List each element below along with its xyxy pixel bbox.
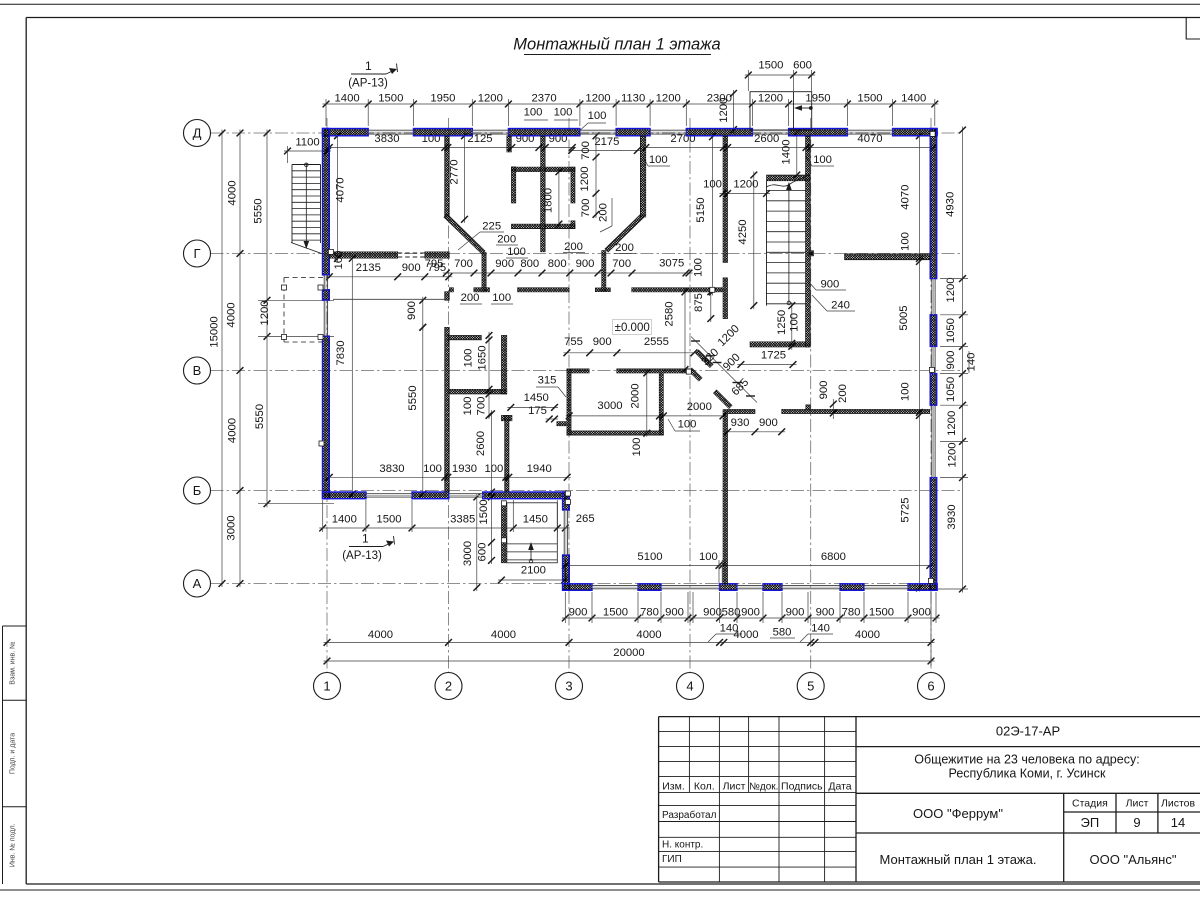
svg-text:900: 900: [665, 606, 684, 618]
svg-text:3830: 3830: [374, 133, 399, 145]
svg-text:Дата: Дата: [828, 780, 851, 792]
svg-text:1200: 1200: [259, 300, 271, 325]
svg-text:1200: 1200: [579, 166, 591, 191]
svg-text:3000: 3000: [597, 400, 622, 412]
svg-text:4070: 4070: [900, 185, 912, 210]
svg-text:4070: 4070: [857, 133, 882, 145]
svg-text:Лист: Лист: [1126, 798, 1149, 810]
svg-text:795: 795: [427, 262, 446, 274]
svg-text:1500: 1500: [857, 92, 882, 104]
svg-text:4000: 4000: [855, 629, 880, 641]
svg-text:900: 900: [816, 606, 835, 618]
svg-text:1950: 1950: [430, 92, 455, 104]
svg-text:1400: 1400: [335, 92, 360, 104]
svg-text:4000: 4000: [227, 418, 239, 443]
svg-text:1400: 1400: [901, 92, 926, 104]
svg-text:1200: 1200: [585, 92, 610, 104]
svg-text:Д: Д: [193, 126, 202, 141]
svg-text:100: 100: [649, 154, 668, 166]
svg-text:2370: 2370: [532, 92, 557, 104]
svg-text:1940: 1940: [527, 463, 552, 475]
svg-text:1200: 1200: [945, 277, 957, 302]
svg-text:2580: 2580: [664, 301, 676, 326]
svg-text:1450: 1450: [523, 514, 548, 526]
svg-text:±0.000: ±0.000: [615, 322, 650, 334]
svg-text:780: 780: [842, 606, 861, 618]
svg-text:755: 755: [564, 336, 583, 348]
svg-text:6: 6: [927, 679, 934, 694]
svg-text:1450: 1450: [524, 392, 549, 404]
svg-text:200: 200: [564, 241, 583, 253]
svg-text:6800: 6800: [821, 551, 846, 563]
svg-text:1200: 1200: [947, 442, 959, 467]
svg-text:ГИП: ГИП: [662, 854, 682, 865]
svg-text:800: 800: [548, 258, 567, 270]
svg-text:5150: 5150: [695, 197, 707, 222]
svg-text:900: 900: [569, 606, 588, 618]
svg-text:1500: 1500: [603, 606, 628, 618]
svg-text:№док.: №док.: [749, 781, 778, 792]
svg-text:1050: 1050: [945, 377, 957, 402]
svg-text:580: 580: [722, 606, 741, 618]
svg-text:Г: Г: [193, 246, 200, 261]
svg-text:Подп. и дата: Подп. и дата: [10, 733, 17, 774]
svg-text:ООО "Феррум": ООО "Феррум": [913, 806, 1003, 821]
svg-text:700: 700: [580, 199, 592, 218]
svg-text:4000: 4000: [226, 302, 238, 327]
svg-text:100: 100: [631, 438, 643, 457]
svg-text:780: 780: [640, 606, 659, 618]
svg-text:Листов: Листов: [1161, 798, 1196, 810]
svg-text:Кол.: Кол.: [694, 780, 715, 792]
svg-text:5100: 5100: [637, 551, 662, 563]
svg-text:875: 875: [693, 293, 705, 312]
svg-text:100: 100: [492, 292, 511, 304]
svg-text:5005: 5005: [898, 305, 910, 330]
svg-text:1950: 1950: [805, 92, 830, 104]
svg-text:Монтажный план 1 этажа.: Монтажный план 1 этажа.: [880, 852, 1037, 867]
svg-text:1500: 1500: [478, 499, 490, 524]
svg-text:900: 900: [406, 301, 418, 320]
svg-text:Взам. инв. №: Взам. инв. №: [10, 641, 17, 684]
svg-text:5725: 5725: [900, 497, 912, 522]
svg-text:100: 100: [462, 397, 474, 416]
svg-text:1: 1: [365, 59, 372, 73]
svg-text:1: 1: [362, 532, 369, 546]
svg-text:4000: 4000: [733, 629, 758, 641]
svg-text:1: 1: [323, 679, 330, 694]
svg-text:3: 3: [565, 679, 572, 694]
svg-text:100: 100: [588, 110, 607, 122]
svg-text:700: 700: [580, 141, 592, 160]
svg-text:Монтажный план 1 этажа: Монтажный план 1 этажа: [513, 36, 720, 54]
svg-text:200: 200: [837, 384, 849, 403]
svg-text:1050: 1050: [945, 318, 957, 343]
svg-text:900: 900: [703, 606, 722, 618]
svg-text:1650: 1650: [477, 345, 489, 370]
svg-text:Стадия: Стадия: [1072, 798, 1108, 810]
svg-text:4000: 4000: [227, 180, 239, 205]
svg-text:225: 225: [482, 221, 501, 233]
svg-text:2135: 2135: [356, 262, 381, 274]
svg-text:2000: 2000: [630, 383, 642, 408]
svg-text:900: 900: [945, 351, 957, 370]
svg-text:5550: 5550: [253, 198, 265, 223]
svg-text:3075: 3075: [659, 258, 684, 270]
svg-text:2: 2: [445, 679, 452, 694]
svg-text:1500: 1500: [378, 92, 403, 104]
svg-text:100: 100: [693, 258, 705, 277]
svg-text:5550: 5550: [407, 385, 419, 410]
svg-text:1500: 1500: [758, 60, 783, 72]
svg-text:Республика Коми, г. Усинск: Республика Коми, г. Усинск: [949, 766, 1106, 780]
svg-text:900: 900: [912, 606, 931, 618]
svg-text:700: 700: [476, 397, 488, 416]
svg-text:900: 900: [786, 606, 805, 618]
svg-text:3385: 3385: [450, 514, 475, 526]
svg-text:Изм.: Изм.: [662, 780, 685, 792]
svg-text:900: 900: [820, 279, 839, 291]
svg-text:14: 14: [1171, 815, 1185, 830]
svg-text:900: 900: [593, 336, 612, 348]
svg-text:240: 240: [831, 300, 850, 312]
svg-text:315: 315: [538, 375, 557, 387]
svg-text:580: 580: [773, 627, 792, 639]
svg-text:200: 200: [497, 234, 516, 246]
svg-text:4000: 4000: [491, 629, 516, 641]
svg-text:9: 9: [1133, 815, 1140, 830]
svg-text:900: 900: [576, 258, 595, 270]
svg-text:930: 930: [731, 417, 750, 429]
svg-text:1100: 1100: [295, 137, 319, 149]
svg-text:100: 100: [423, 463, 442, 475]
svg-text:900: 900: [741, 606, 760, 618]
svg-text:175: 175: [528, 405, 547, 417]
svg-text:3830: 3830: [379, 463, 404, 475]
svg-text:(АР-13): (АР-13): [348, 78, 388, 90]
svg-text:2600: 2600: [754, 133, 779, 145]
svg-text:4000: 4000: [636, 629, 661, 641]
svg-text:1200: 1200: [733, 179, 758, 191]
svg-text:1400: 1400: [332, 514, 357, 526]
svg-text:Б: Б: [193, 483, 202, 498]
svg-text:1250: 1250: [776, 310, 788, 335]
svg-text:Общежитие на 23 человека по ад: Общежитие на 23 человека по адресу:: [914, 753, 1139, 767]
svg-text:100: 100: [524, 107, 543, 119]
svg-text:1200: 1200: [478, 92, 503, 104]
svg-text:1725: 1725: [761, 350, 786, 362]
svg-text:3930: 3930: [946, 504, 958, 529]
svg-text:Разработал: Разработал: [662, 809, 717, 821]
svg-text:ЭП: ЭП: [1081, 815, 1100, 830]
svg-text:100: 100: [813, 154, 832, 166]
svg-text:3000: 3000: [462, 541, 474, 566]
svg-text:1200: 1200: [656, 92, 681, 104]
svg-text:4930: 4930: [945, 192, 957, 217]
svg-text:7830: 7830: [335, 340, 347, 365]
svg-text:1130: 1130: [621, 92, 645, 104]
svg-text:4000: 4000: [368, 629, 393, 641]
svg-text:140: 140: [811, 623, 830, 635]
svg-text:В: В: [193, 363, 202, 378]
svg-text:700: 700: [612, 258, 631, 270]
svg-text:5: 5: [807, 679, 814, 694]
svg-text:900: 900: [818, 381, 830, 400]
svg-text:1400: 1400: [781, 139, 793, 164]
svg-text:4: 4: [686, 679, 693, 694]
svg-text:5550: 5550: [254, 404, 266, 429]
svg-text:900: 900: [495, 258, 514, 270]
svg-text:600: 600: [477, 543, 489, 562]
svg-text:100: 100: [462, 349, 474, 368]
svg-text:100: 100: [900, 232, 912, 251]
svg-text:02Э-17-АР: 02Э-17-АР: [996, 724, 1060, 739]
svg-text:2555: 2555: [644, 336, 669, 348]
svg-text:140: 140: [966, 353, 978, 372]
svg-text:Инв. № подл.: Инв. № подл.: [10, 823, 17, 867]
svg-text:2770: 2770: [449, 159, 461, 184]
svg-text:1500: 1500: [376, 514, 401, 526]
svg-text:100: 100: [900, 382, 912, 401]
svg-text:Подпись: Подпись: [781, 780, 823, 792]
svg-text:2100: 2100: [521, 565, 546, 577]
svg-text:900: 900: [402, 262, 421, 274]
svg-text:А: А: [193, 576, 202, 591]
svg-text:200: 200: [461, 292, 480, 304]
svg-text:700: 700: [454, 258, 473, 270]
svg-text:100: 100: [484, 463, 503, 475]
svg-text:(АР-13): (АР-13): [342, 550, 382, 562]
svg-text:4070: 4070: [335, 177, 347, 202]
svg-text:20000: 20000: [613, 647, 644, 659]
svg-text:1200: 1200: [946, 411, 958, 436]
svg-text:ООО "Альянс": ООО "Альянс": [1090, 852, 1177, 867]
svg-text:100: 100: [507, 246, 526, 258]
svg-text:3000: 3000: [226, 515, 238, 540]
svg-text:200: 200: [615, 242, 634, 254]
svg-text:100: 100: [678, 419, 697, 431]
svg-text:1930: 1930: [452, 463, 477, 475]
svg-text:800: 800: [520, 258, 539, 270]
svg-text:2000: 2000: [687, 401, 712, 413]
svg-text:1500: 1500: [869, 606, 894, 618]
svg-text:1200: 1200: [758, 92, 783, 104]
svg-text:1200: 1200: [718, 98, 730, 123]
svg-text:900: 900: [759, 417, 778, 429]
svg-text:600: 600: [793, 60, 812, 72]
svg-text:100: 100: [699, 551, 718, 563]
svg-text:100: 100: [554, 107, 573, 119]
svg-text:4250: 4250: [737, 219, 749, 244]
svg-text:100: 100: [703, 179, 722, 191]
svg-text:Лист: Лист: [723, 780, 746, 792]
svg-text:100: 100: [788, 313, 800, 332]
svg-text:2175: 2175: [594, 136, 619, 148]
svg-text:15000: 15000: [209, 316, 221, 347]
svg-text:265: 265: [576, 513, 595, 525]
svg-text:Н. контр.: Н. контр.: [662, 840, 703, 851]
svg-text:2600: 2600: [475, 431, 487, 456]
svg-text:200: 200: [597, 203, 609, 222]
